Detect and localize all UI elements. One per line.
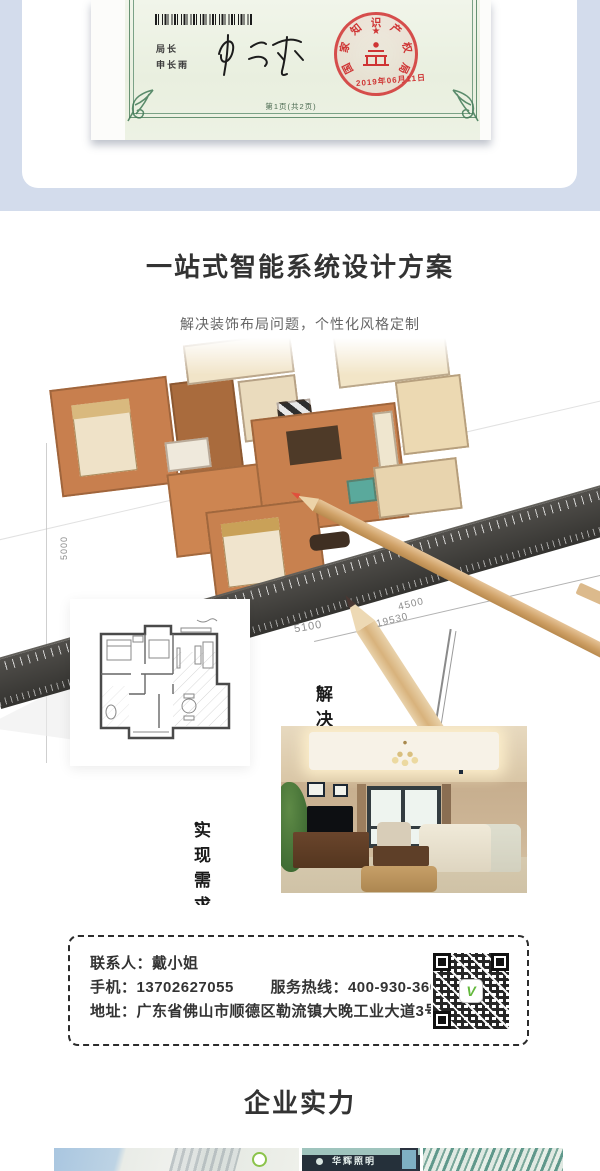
qr-finder-icon — [433, 1011, 451, 1029]
floorplan-room — [373, 457, 463, 519]
wall-frame — [333, 784, 348, 797]
certificate-photo: 局长 申长雨 国家知识产权局 — [91, 0, 491, 140]
seal-emblem-icon — [361, 42, 391, 66]
barcode — [155, 14, 253, 25]
certificate-card: 局长 申长雨 国家知识产权局 — [22, 0, 577, 188]
strength-heading: 企业实力 — [0, 1085, 600, 1121]
warehouse-image — [423, 1148, 563, 1171]
qr-finder-icon — [491, 953, 509, 971]
director-name: 申长雨 — [156, 57, 189, 73]
qr-logo-icon: V — [459, 979, 483, 1003]
chandelier — [391, 740, 419, 766]
coffee-table — [373, 846, 429, 866]
contact-address: 地址：广东省佛山市顺德区勒流镇大晚工业大道3号 — [90, 1003, 440, 1021]
storefront-logo-icon — [316, 1158, 323, 1165]
qr-finder-icon — [433, 953, 451, 971]
tv-cabinet — [293, 832, 369, 868]
seal-star-icon: ★ — [372, 26, 381, 37]
qr-code: V — [431, 951, 511, 1031]
director-label: 局长 — [156, 41, 189, 57]
floorplan-bed — [71, 398, 137, 477]
storefront-door — [400, 1148, 418, 1171]
dimension-label: 19530 — [375, 611, 409, 630]
photo-fade-top — [0, 333, 600, 375]
living-room-photo — [281, 726, 527, 893]
floorplan-room — [395, 374, 470, 455]
contact-phones: 手机：13702627055 服务热线：400-930-3600 — [90, 979, 447, 997]
factory-logo-icon — [252, 1152, 267, 1167]
blueprint-photo: 5100 4500 19530 5000 — [0, 333, 600, 905]
contact-hotline: 服务热线：400-930-3600 — [270, 979, 447, 996]
certificate-section: 局长 申长雨 国家知识产权局 — [0, 0, 600, 211]
section-title: 一站式智能系统设计方案 — [0, 250, 600, 284]
floorplan-drawing — [84, 612, 236, 752]
contact-person: 联系人：戴小姐 — [90, 955, 199, 973]
page-number: 第1页(共2页) — [91, 101, 491, 112]
floorplan-room — [346, 477, 377, 504]
storefront-sign: 华辉照明 — [332, 1157, 376, 1166]
dimension-label: 5000 — [59, 536, 69, 560]
floorplan-room — [164, 437, 211, 472]
director-signature — [211, 30, 311, 80]
section-subtitle: 解决装饰布局问题，个性化风格定制 — [0, 314, 600, 334]
ottoman — [361, 866, 437, 892]
pencil-edge — [575, 583, 600, 612]
contact-mobile: 手机：13702627055 — [90, 979, 234, 996]
wall-frame — [307, 782, 325, 797]
floorplan-furniture — [286, 425, 342, 465]
director-block: 局长 申长雨 — [156, 41, 189, 73]
page: 局长 申长雨 国家知识产权局 — [0, 0, 600, 1171]
floorplan-furniture — [309, 531, 351, 552]
contact-card: 联系人：戴小姐 手机：13702627055 服务热线：400-930-3600… — [68, 935, 529, 1046]
floorplan-card — [70, 599, 250, 766]
sofa — [419, 824, 521, 872]
wall-frame-grid — [459, 770, 519, 826]
dimension-label: 4500 — [397, 596, 425, 613]
factory-windows — [169, 1148, 241, 1171]
factory-image — [54, 1148, 299, 1171]
storefront-image: 华辉照明 — [302, 1148, 420, 1171]
